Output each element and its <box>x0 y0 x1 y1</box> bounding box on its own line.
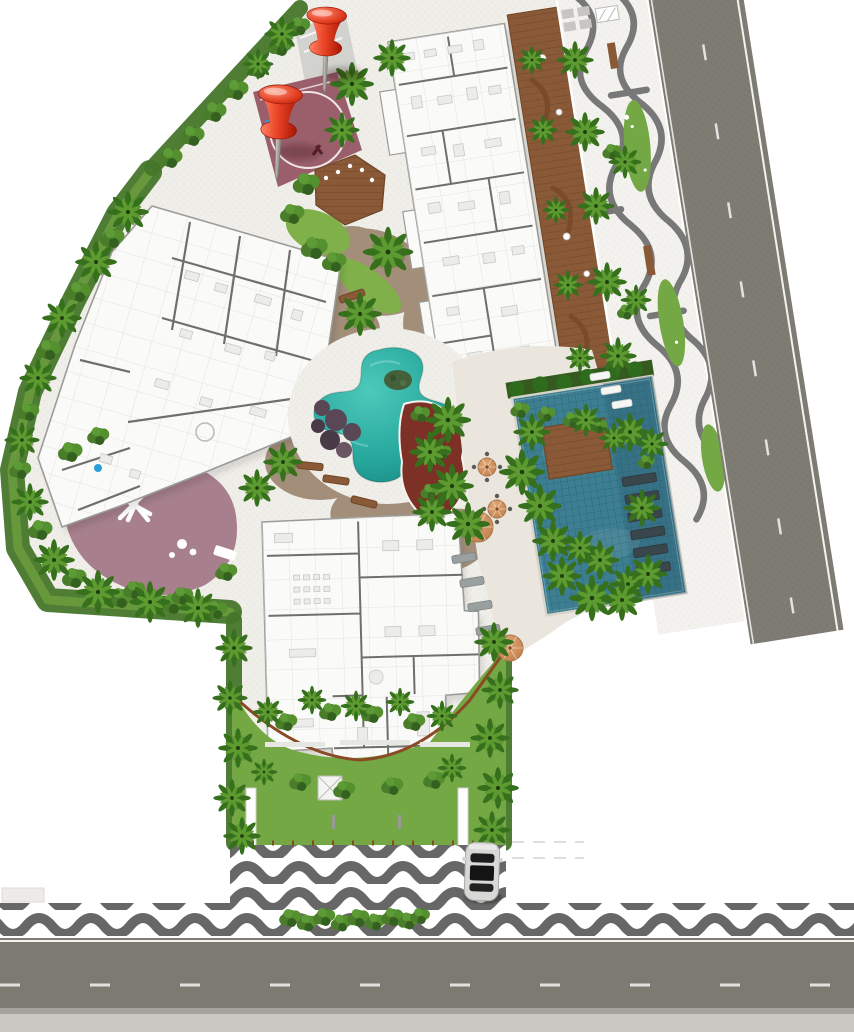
chair <box>485 478 489 482</box>
palm-tree <box>513 413 550 450</box>
palm-tree <box>76 570 120 614</box>
palm-tree <box>623 489 660 526</box>
palm-tree <box>609 146 642 179</box>
pool-island <box>384 370 412 390</box>
palm-tree <box>238 469 275 506</box>
palm-tree <box>518 484 562 528</box>
palm-tree <box>11 483 48 520</box>
road-edge-line <box>0 940 854 942</box>
palm-tree <box>218 728 258 768</box>
palm-tree <box>253 697 284 728</box>
palm-tree <box>4 422 39 457</box>
palm-tree <box>75 241 117 283</box>
palm-tree <box>178 588 218 628</box>
palm-tree <box>251 759 277 785</box>
palm-tree <box>386 688 415 717</box>
palm-tree <box>562 530 597 565</box>
palm-tree <box>223 817 260 854</box>
palm-tree <box>474 622 514 662</box>
palm-tree <box>565 112 605 152</box>
avenue-bottom <box>0 938 854 1010</box>
palm-tree <box>636 428 669 461</box>
site-plan-svg <box>0 0 854 1032</box>
palm-tree <box>470 718 510 758</box>
palm-tree <box>215 629 252 666</box>
curb-pad <box>2 888 44 902</box>
palm-tree <box>427 701 458 732</box>
palm-tree <box>553 270 583 300</box>
chair <box>495 520 499 524</box>
car-windshield <box>470 853 494 863</box>
parked-car <box>461 842 504 904</box>
palm-tree <box>628 554 668 594</box>
palm-tree <box>481 671 518 708</box>
palm-tree <box>412 492 452 532</box>
chair <box>508 507 512 511</box>
palm-tree <box>324 112 359 147</box>
palm-tree <box>373 39 410 76</box>
palm-tree <box>556 41 593 78</box>
chair <box>472 465 476 469</box>
palm-tree <box>438 754 467 783</box>
palm-tree <box>107 191 149 233</box>
palm-tree <box>542 196 569 223</box>
car-roof <box>470 865 495 881</box>
curb <box>0 1008 854 1014</box>
palm-tree <box>577 187 614 224</box>
palm-tree <box>528 115 558 145</box>
chair <box>498 465 502 469</box>
palm-tree <box>298 686 327 715</box>
palm-tree <box>587 262 627 302</box>
chair <box>485 452 489 456</box>
gate-pillar <box>458 788 468 846</box>
parasol-pole <box>508 646 511 649</box>
car-rear-window <box>469 883 493 892</box>
palm-tree <box>212 680 247 715</box>
palm-tree <box>599 337 636 374</box>
parasol-pole <box>485 465 488 468</box>
palm-tree <box>409 431 451 473</box>
palm-tree <box>621 285 652 316</box>
palm-tree <box>33 539 75 581</box>
palm-tree <box>129 581 171 623</box>
palm-tree <box>518 46 547 75</box>
palm-tree <box>477 767 519 809</box>
parasol-pole <box>495 507 498 510</box>
palm-tree <box>19 359 56 396</box>
spa-tub-icon <box>94 464 102 472</box>
chair <box>495 494 499 498</box>
palm-tree <box>264 16 299 51</box>
palm-tree <box>446 502 490 546</box>
palm-tree <box>213 779 250 816</box>
palm-tree <box>599 423 630 454</box>
palm-tree <box>542 556 582 596</box>
palm-tree <box>363 227 414 278</box>
far-sidewalk <box>0 1014 854 1032</box>
palm-tree <box>570 404 603 437</box>
palm-tree <box>338 292 382 336</box>
site-plan-canvas <box>0 0 854 1032</box>
palm-tree <box>341 691 372 722</box>
palm-tree <box>243 49 274 80</box>
palm-tree <box>532 520 574 562</box>
palm-tree <box>566 344 595 373</box>
palm-tree <box>42 298 82 338</box>
